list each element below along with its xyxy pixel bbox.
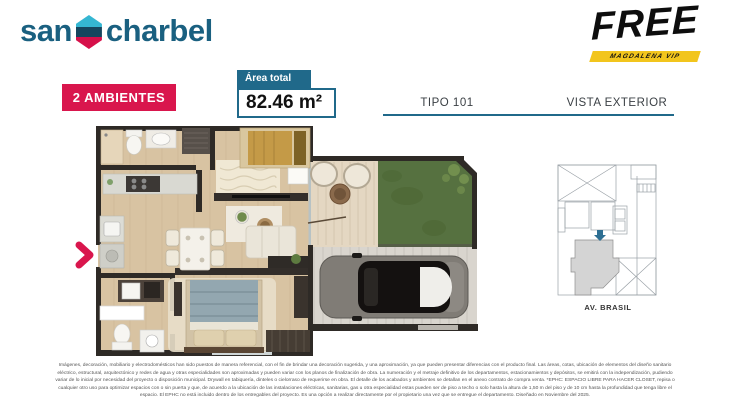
area-total-value: 82.46 m²	[239, 90, 334, 116]
area-total-label: Área total	[237, 70, 311, 88]
flyer-canvas: san charbel FREE MAGDALENA VIP 2 AMBIENT…	[0, 0, 730, 411]
garden	[378, 160, 475, 247]
disclaimer-line: espacio. El EPHC no está incluido dentro…	[8, 392, 722, 400]
disclaimer: Imágenes, decoración, mobiliario y elect…	[8, 362, 722, 400]
brand-word-charbel: charbel	[106, 15, 213, 46]
site-key-plan	[553, 162, 663, 298]
unit-type-label: TIPO 101	[387, 97, 507, 109]
disclaimer-line: eléctrico, estructural, arquitectónico y…	[8, 370, 722, 378]
disclaimer-line: cualquier otro uso para optimizar espaci…	[8, 385, 722, 393]
entrance-arrow-icon	[79, 245, 90, 265]
free-campaign-logo: FREE MAGDALENA VIP	[575, 4, 715, 68]
area-total-box: 82.46 m²	[237, 88, 336, 118]
free-subtitle: MAGDALENA VIP	[589, 51, 701, 62]
disclaimer-line: Imágenes, decoración, mobiliario y elect…	[8, 362, 722, 370]
street-label: AV. BRASIL	[553, 303, 663, 312]
brand-word-san: san	[20, 15, 72, 46]
header-divider	[383, 114, 674, 116]
rooms-badge: 2 AMBIENTES	[62, 84, 176, 111]
view-label: VISTA EXTERIOR	[552, 97, 682, 109]
car	[320, 253, 468, 321]
disclaimer-line: variar de lo inicial por necesidad del p…	[8, 377, 722, 385]
brand-logo: san charbel	[20, 13, 213, 47]
floor-plan	[62, 126, 482, 361]
free-title: FREE	[575, 0, 715, 48]
brand-hexagon-icon	[76, 15, 102, 49]
